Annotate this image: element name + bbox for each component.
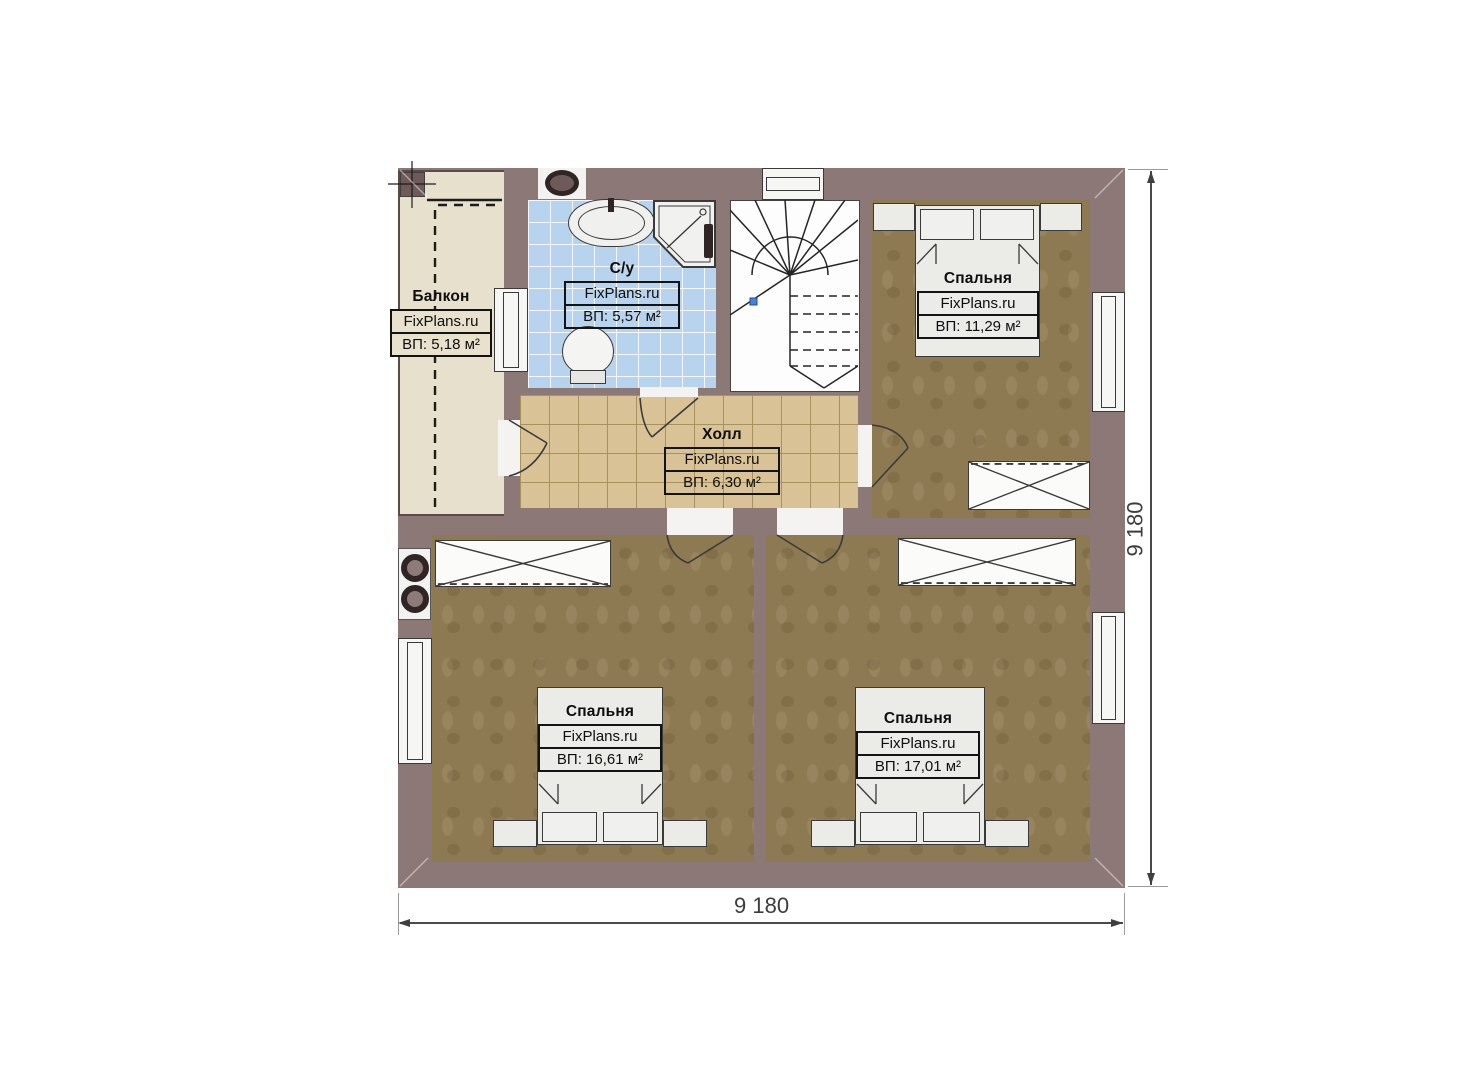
room-name: Спальня xyxy=(944,270,1012,288)
door-opening-bedroom-top xyxy=(858,425,872,487)
room-name: Балкон xyxy=(412,288,469,306)
window-right-bedroom-top xyxy=(1092,292,1125,412)
watermark-box: FixPlans.ru xyxy=(664,447,780,472)
nightstand xyxy=(493,820,537,847)
watermark-box: FixPlans.ru xyxy=(538,724,662,749)
area-box: ВП: 5,57 м² xyxy=(564,304,680,329)
door-opening-bedroom-bottom-left xyxy=(667,508,733,535)
door-opening-bedroom-bottom-right xyxy=(777,508,843,535)
room-name: Спальня xyxy=(884,710,952,728)
vent-flue xyxy=(545,170,579,196)
dimension-label-bottom: 9 180 xyxy=(734,893,789,919)
dimension-line-right xyxy=(1150,171,1152,885)
nightstand xyxy=(873,203,915,231)
stove-flue-2 xyxy=(401,585,429,613)
wardrobe xyxy=(898,538,1076,586)
label-bedroom-bottom-left: Спальня FixPlans.ru ВП: 16,61 м² xyxy=(538,703,662,772)
nightstand xyxy=(1040,203,1082,231)
room-name: Спальня xyxy=(566,703,634,721)
window-left-bedroom-bottom xyxy=(398,638,432,764)
watermark-box: FixPlans.ru xyxy=(917,291,1039,316)
arrowhead-icon xyxy=(1111,919,1123,927)
sink-tap xyxy=(608,198,614,212)
extension-line xyxy=(1128,169,1168,170)
extension-line xyxy=(398,893,399,935)
watermark-box: FixPlans.ru xyxy=(390,309,492,334)
area-box: ВП: 17,01 м² xyxy=(856,754,980,779)
window-right-bedroom-bottom xyxy=(1092,612,1125,724)
room-name: С/у xyxy=(610,260,635,278)
dimension-line-bottom xyxy=(400,922,1123,924)
dimension-label-right: 9 180 xyxy=(1123,501,1149,556)
window-top-stairs xyxy=(762,168,824,200)
page: { "rooms": { "balcony": { "name": "Балко… xyxy=(0,0,1473,1080)
label-bedroom-top: Спальня FixPlans.ru ВП: 11,29 м² xyxy=(917,270,1039,339)
window-balcony-bathroom xyxy=(494,288,528,372)
arrowhead-icon xyxy=(1147,171,1155,183)
toilet-bowl xyxy=(562,326,614,374)
watermark-box: FixPlans.ru xyxy=(856,731,980,756)
stair-marker xyxy=(750,298,757,305)
watermark-box: FixPlans.ru xyxy=(564,281,680,306)
area-box: ВП: 11,29 м² xyxy=(917,314,1039,339)
wardrobe xyxy=(968,461,1090,510)
wardrobe xyxy=(435,540,611,587)
door-opening-bathroom xyxy=(640,387,698,397)
stove-flue-1 xyxy=(401,554,429,582)
label-balcony: Балкон FixPlans.ru ВП: 5,18 м² xyxy=(390,288,492,357)
room-name: Холл xyxy=(702,426,742,444)
toilet-tank xyxy=(570,370,606,384)
shower-fittings xyxy=(704,224,713,258)
area-box: ВП: 5,18 м² xyxy=(390,332,492,357)
extension-line xyxy=(1124,893,1125,935)
area-box: ВП: 6,30 м² xyxy=(664,470,780,495)
label-hall: Холл FixPlans.ru ВП: 6,30 м² xyxy=(664,426,780,495)
area-box: ВП: 16,61 м² xyxy=(538,747,662,772)
stairs xyxy=(730,200,858,390)
arrowhead-icon xyxy=(1147,873,1155,885)
nightstand xyxy=(663,820,707,847)
nightstand xyxy=(811,820,855,847)
corner-column xyxy=(400,172,425,197)
extension-line xyxy=(1128,886,1168,887)
label-bedroom-bottom-right: Спальня FixPlans.ru ВП: 17,01 м² xyxy=(856,710,980,779)
door-opening-balcony xyxy=(498,420,520,476)
arrowhead-icon xyxy=(398,919,410,927)
label-bathroom: С/у FixPlans.ru ВП: 5,57 м² xyxy=(564,260,680,329)
floor-plan: Балкон FixPlans.ru ВП: 5,18 м² С/у FixPl… xyxy=(398,168,1125,888)
nightstand xyxy=(985,820,1029,847)
